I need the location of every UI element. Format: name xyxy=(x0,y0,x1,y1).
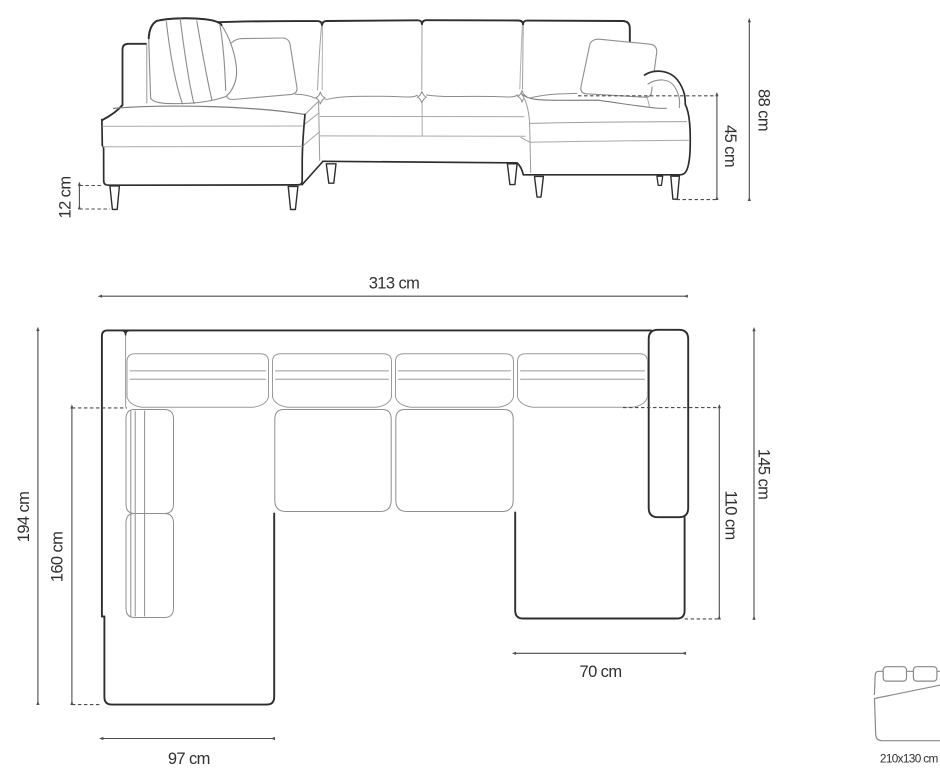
svg-text:160 cm: 160 cm xyxy=(48,532,66,583)
svg-text:88 cm: 88 cm xyxy=(755,89,773,131)
svg-text:45 cm: 45 cm xyxy=(721,125,739,167)
svg-text:70 cm: 70 cm xyxy=(580,663,622,681)
svg-text:97 cm: 97 cm xyxy=(168,750,210,768)
svg-text:145 cm: 145 cm xyxy=(755,449,773,500)
svg-text:12 cm: 12 cm xyxy=(57,177,75,219)
svg-text:194 cm: 194 cm xyxy=(15,492,33,543)
svg-text:210x130 cm: 210x130 cm xyxy=(880,751,939,765)
svg-text:110 cm: 110 cm xyxy=(721,490,739,539)
svg-text:313 cm: 313 cm xyxy=(369,275,420,293)
